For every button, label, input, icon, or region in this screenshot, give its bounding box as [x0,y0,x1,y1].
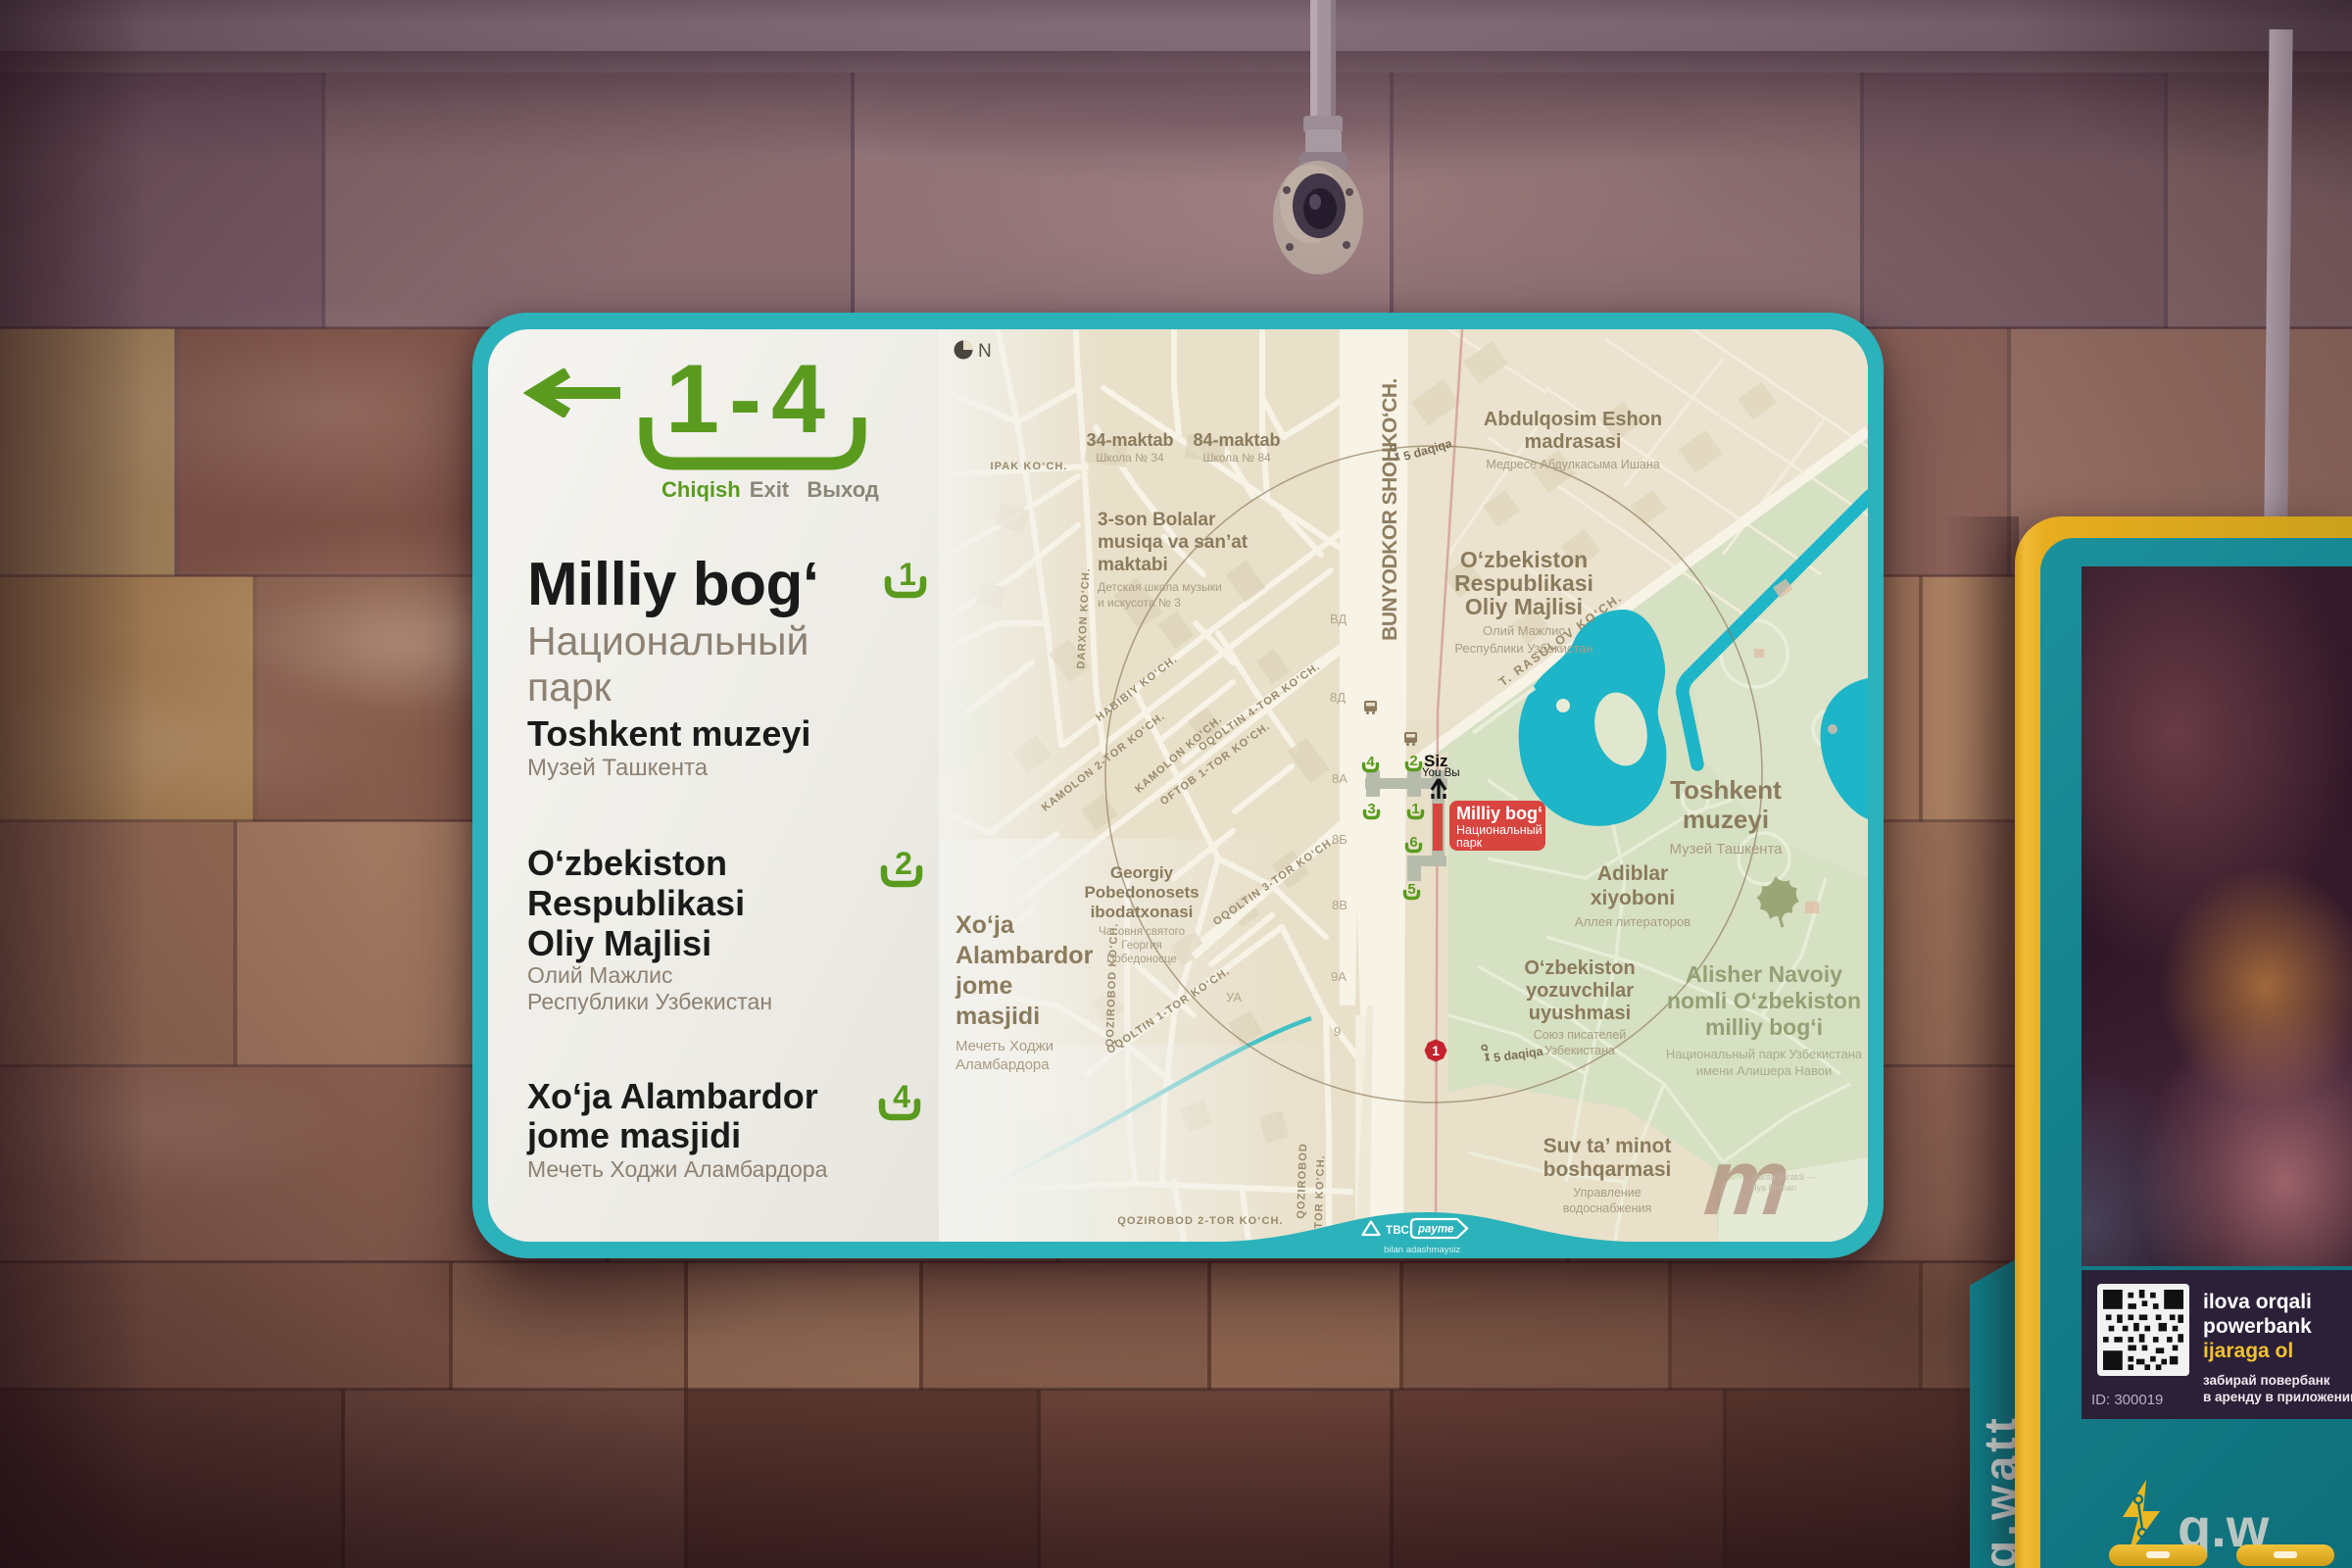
svg-text:IPAK KO‘CH.: IPAK KO‘CH. [990,461,1067,472]
svg-text:4: 4 [1366,754,1375,770]
svg-text:N: N [978,341,992,362]
svg-text:Георгия: Георгия [1121,940,1162,952]
svg-text:УА: УА [1226,990,1242,1004]
svg-text:2: 2 [1409,753,1417,769]
svg-text:ТВС: ТВС [1386,1225,1409,1237]
svg-text:OQOLTIN 3-TOR KO‘CH.: OQOLTIN 3-TOR KO‘CH. [1211,835,1338,928]
svg-text:Союз писателей: Союз писателей [1534,1028,1627,1042]
svg-text:Аламбардора: Аламбардора [955,1056,1050,1073]
svg-text:Milliy bog‘: Milliy bog‘ [1456,804,1543,823]
svg-text:9: 9 [1334,1024,1341,1039]
svg-text:Toshkent: Toshkent [1670,775,1782,805]
svg-text:O‘zbekiston: O‘zbekiston [1524,957,1635,979]
svg-text:6: 6 [1409,834,1417,851]
svg-text:8В: 8В [1332,898,1347,912]
svg-text:KAMOLON 2-TOR KO‘CH.: KAMOLON 2-TOR KO‘CH. [1040,710,1168,814]
svg-text:Школа № 34: Школа № 34 [1096,451,1164,465]
svg-text:Adiblar: Adiblar [1597,862,1668,885]
svg-text:masjidi: masjidi [955,1003,1040,1030]
svg-text:yozuvchilar: yozuvchilar [1526,980,1634,1002]
svg-text:nomli O‘zbekiston: nomli O‘zbekiston [1667,988,1861,1013]
svg-text:boshqarmasi: boshqarmasi [1543,1158,1672,1181]
svg-text:HABIBIY KO‘CH.: HABIBIY KO‘CH. [1094,654,1180,724]
svg-text:You Вы: You Вы [1422,767,1460,779]
svg-text:Олий Мажлис: Олий Мажлис [1483,623,1565,638]
svg-text:5 daqiqa: 5 daqiqa [1402,436,1455,464]
svg-text:парк: парк [1456,836,1483,850]
svg-text:ibodatxonasi: ibodatxonasi [1091,903,1194,921]
svg-text:Pobedonosets: Pobedonosets [1084,883,1199,902]
svg-text:Oliy Majlisi: Oliy Majlisi [1465,594,1583,619]
svg-text:Respublikasi: Respublikasi [1454,570,1593,596]
svg-text:muzeyi: muzeyi [1683,805,1769,834]
svg-text:Alisher Navoiy: Alisher Navoiy [1686,961,1842,987]
svg-text:4: 4 [893,1082,910,1114]
svg-text:jome: jome [955,972,1012,1000]
svg-text:uyushmasi: uyushmasi [1529,1003,1631,1024]
svg-text:bilan adashmaysiz: bilan adashmaysiz [1384,1245,1460,1255]
svg-text:QOZIROBOD KO‘CH.: QOZIROBOD KO‘CH. [1104,922,1120,1047]
svg-text:Музей Ташкента: Музей Ташкента [1669,841,1783,857]
svg-text:QOZIROBOD: QOZIROBOD [1296,1143,1310,1219]
svg-text:Управление: Управление [1573,1186,1641,1200]
svg-text:Школа № 84: Школа № 84 [1202,451,1271,465]
svg-text:Узбекистана: Узбекистана [1544,1044,1615,1057]
svg-text:3-son Bolalar: 3-son Bolalar [1098,510,1216,530]
svg-text:payme: payme [1417,1224,1454,1236]
svg-text:Аллея литераторов: Аллея литераторов [1575,914,1690,929]
svg-text:Часовня святого: Часовня святого [1099,926,1185,938]
svg-text:musiqa va san’at: musiqa va san’at [1098,532,1249,553]
svg-text:Национальный парк Узбекистана: Национальный парк Узбекистана [1666,1047,1863,1061]
svg-text:9А: 9А [1331,969,1347,984]
svg-text:O‘zbekiston: O‘zbekiston [1460,547,1588,572]
svg-text:8А: 8А [1332,771,1347,786]
svg-text:Республики Узбекистан: Республики Узбекистан [1454,641,1592,656]
svg-text:8Д: 8Д [1330,690,1346,705]
svg-text:milliy bog‘i: milliy bog‘i [1705,1014,1823,1040]
svg-text:madrasasi: madrasasi [1525,431,1622,453]
svg-text:ВД: ВД [1330,612,1347,626]
svg-text:xiyoboni: xiyoboni [1591,887,1675,909]
svg-text:Ilya Birman: Ilya Birman [1752,1183,1796,1193]
svg-text:Детская школа музыки: Детская школа музыки [1098,580,1222,594]
svg-text:OQOLTIN 4-TOR KO‘CH.: OQOLTIN 4-TOR KO‘CH. [1197,661,1323,754]
svg-text:maktabi: maktabi [1098,555,1168,575]
svg-text:Победоносце: Победоносце [1106,954,1177,965]
svg-text:Медресе Абдулкасыма Ишана: Медресе Абдулкасыма Ишана [1486,458,1659,471]
svg-text:Мечеть Ходжи: Мечеть Ходжи [955,1038,1053,1054]
svg-text:BUNYODKOR SHOHKO‘CH.: BUNYODKOR SHOHKO‘CH. [1379,378,1401,641]
svg-text:Georgiy: Georgiy [1110,863,1174,882]
svg-text:2: 2 [895,849,912,881]
svg-text:Xarita yaratdi —: Xarita yaratdi — [1752,1172,1816,1182]
svg-text:1: 1 [1411,801,1419,817]
svg-text:3: 3 [1367,801,1375,817]
svg-text:5 daqiqa: 5 daqiqa [1493,1045,1544,1065]
svg-text:OQOLTIN 1-TOR KO‘CH.: OQOLTIN 1-TOR KO‘CH. [1104,965,1232,1056]
svg-text:8Б: 8Б [1332,832,1347,847]
svg-text:DARXON KO‘CH.: DARXON KO‘CH. [1075,567,1092,669]
svg-text:имени Алишера Навои: имени Алишера Навои [1696,1063,1833,1078]
svg-text:5: 5 [1407,881,1415,898]
svg-text:Suv ta’ minot: Suv ta’ minot [1543,1135,1672,1157]
svg-text:и искусота № 3: и искусота № 3 [1098,596,1181,610]
svg-text:Alambardor: Alambardor [955,942,1094,969]
svg-text:1: 1 [899,560,916,592]
svg-text:1: 1 [1432,1043,1440,1058]
svg-text:Национальный: Национальный [1456,823,1543,837]
svg-text:84-maktab: 84-maktab [1193,430,1280,450]
svg-text:Abdulqosim Eshon: Abdulqosim Eshon [1484,409,1662,430]
svg-text:Xo‘ja: Xo‘ja [955,911,1015,939]
svg-text:34-maktab: 34-maktab [1086,430,1173,450]
